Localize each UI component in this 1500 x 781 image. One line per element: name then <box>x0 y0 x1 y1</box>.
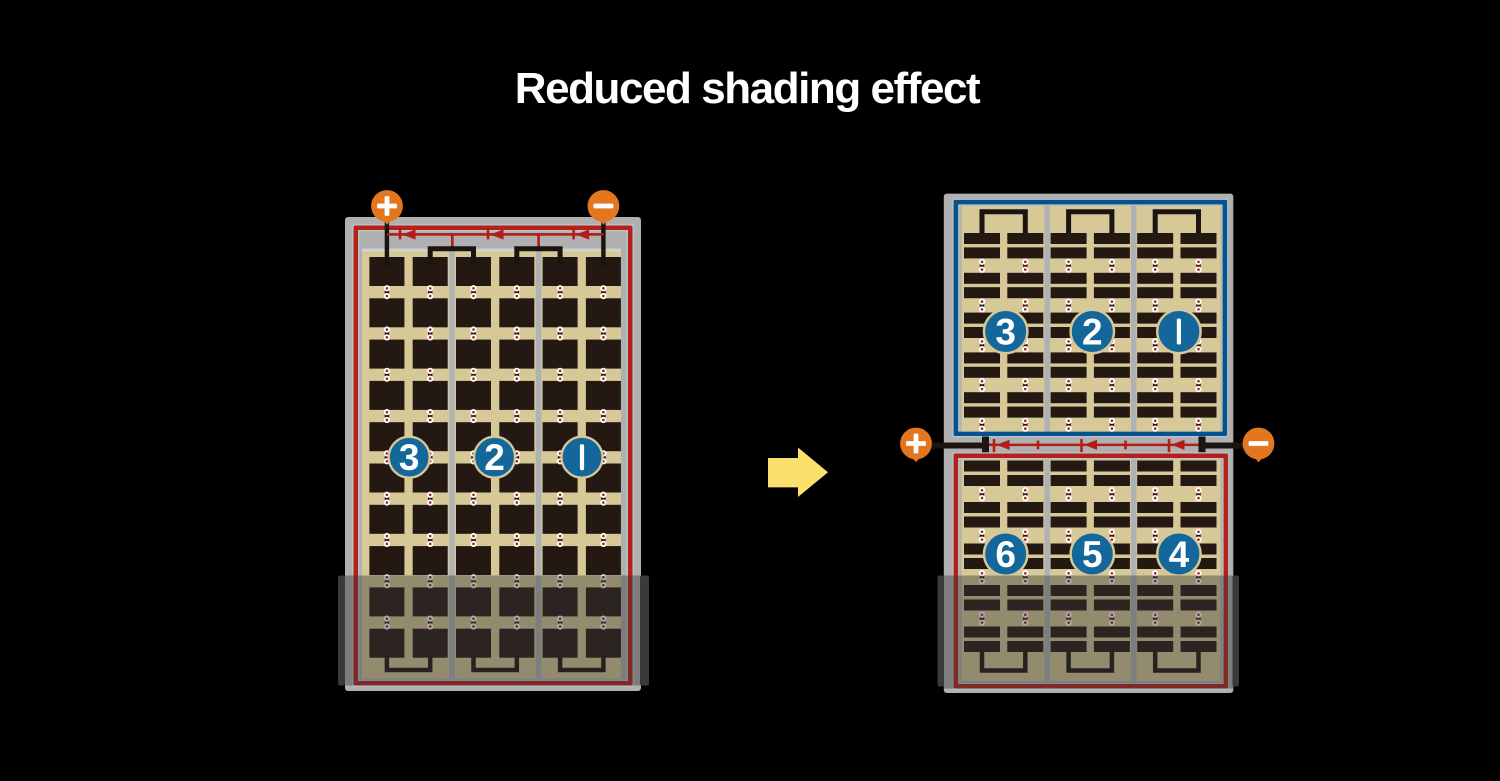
svg-text:5: 5 <box>1082 534 1103 575</box>
svg-text:3: 3 <box>995 312 1016 353</box>
svg-text:Reduced shading effect: Reduced shading effect <box>515 64 981 113</box>
svg-text:4: 4 <box>1169 534 1190 575</box>
svg-text:3: 3 <box>399 437 420 478</box>
svg-text:2: 2 <box>1082 312 1103 353</box>
svg-text:2: 2 <box>484 437 505 478</box>
svg-text:6: 6 <box>995 534 1016 575</box>
